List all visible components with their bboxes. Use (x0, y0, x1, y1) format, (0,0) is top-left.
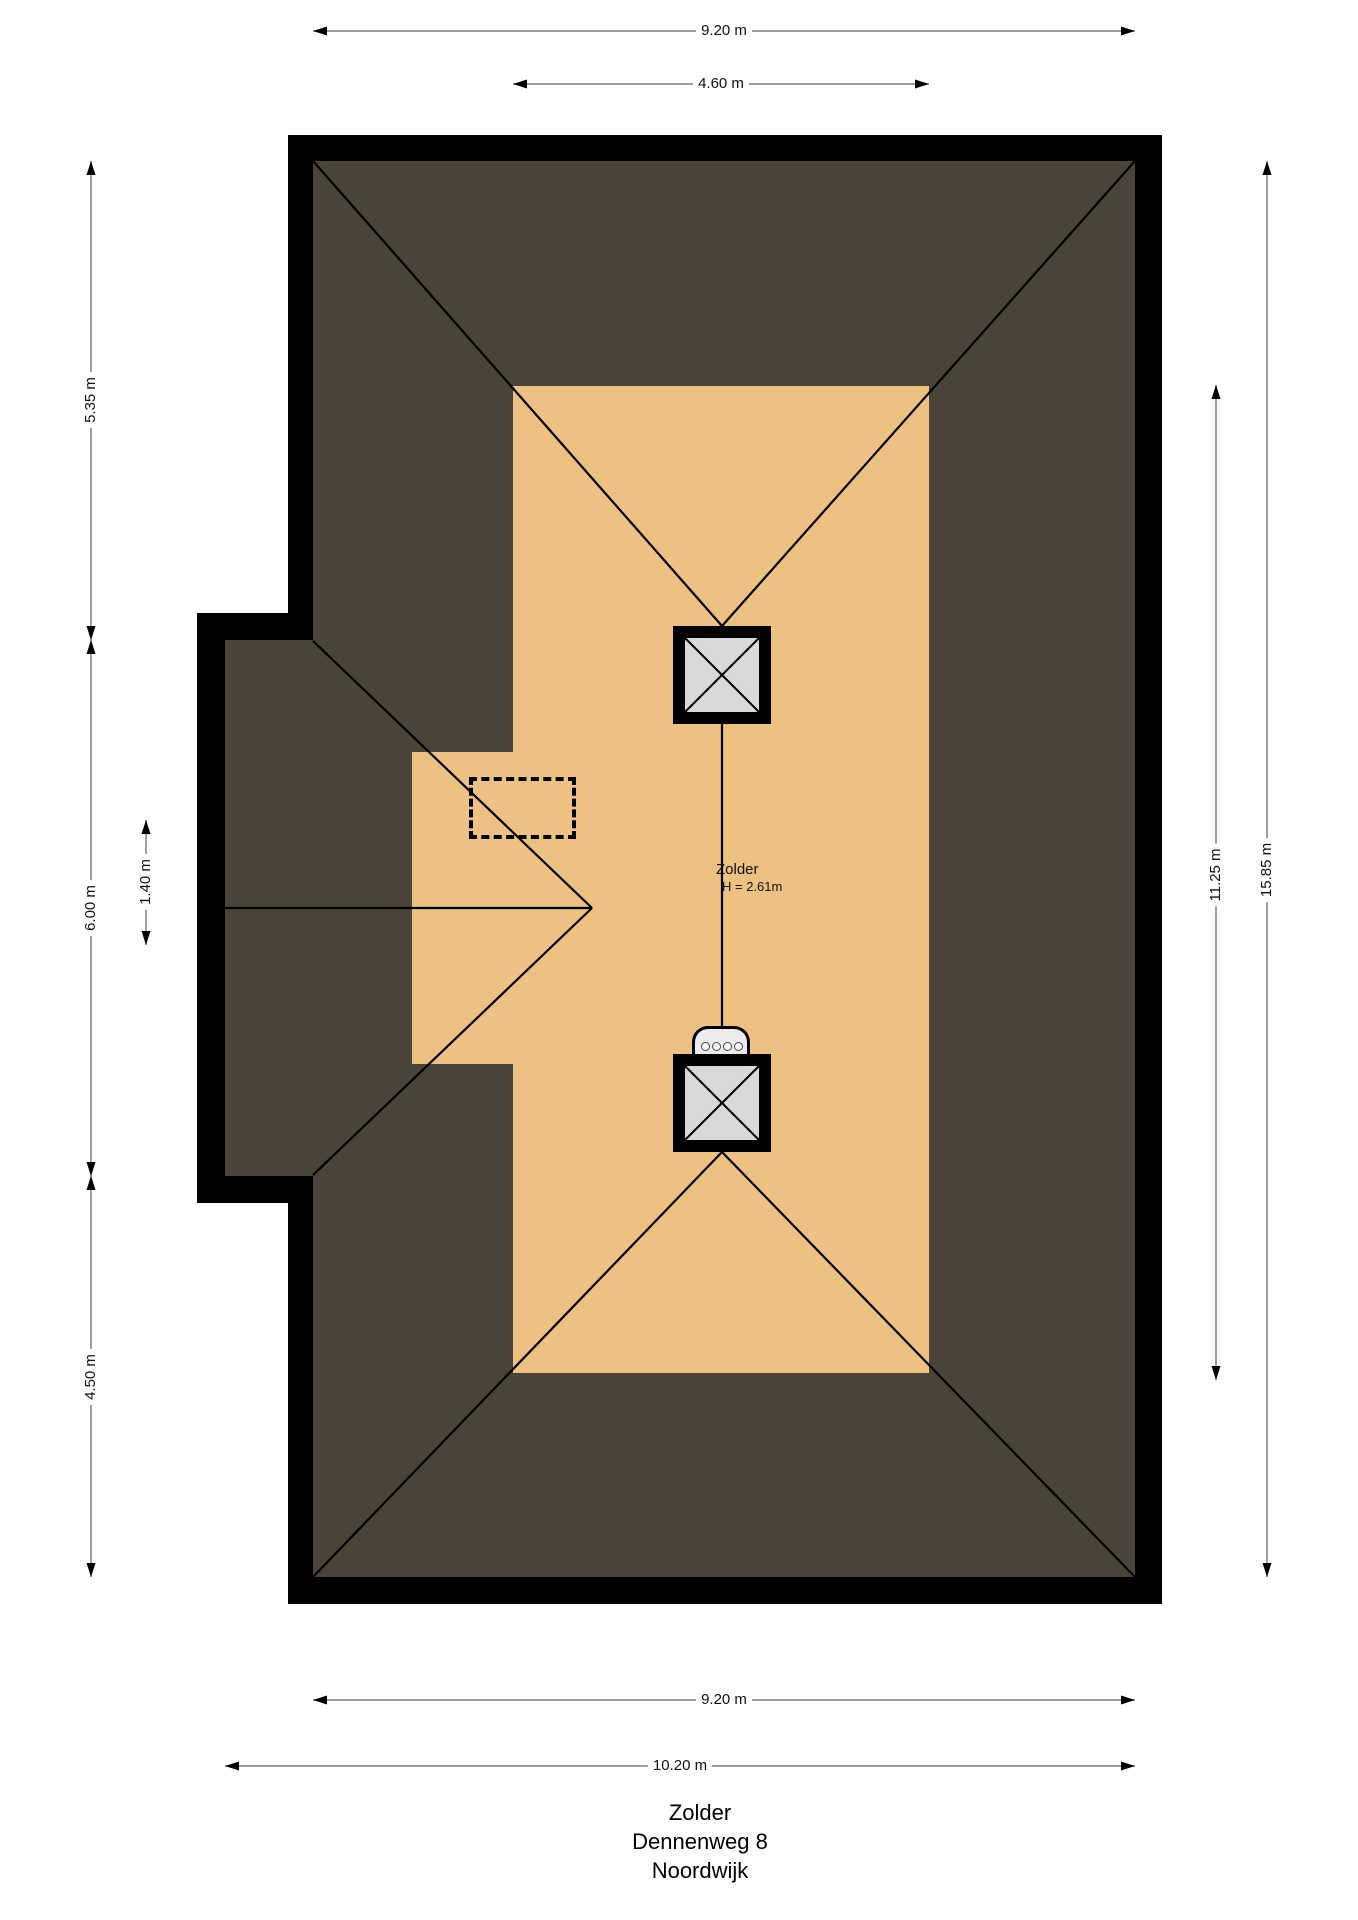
dormer-hip-top (313, 641, 592, 908)
dim-top-outer: 9.20 m (696, 22, 752, 40)
dimension-lines (91, 31, 1267, 1766)
title-address: Dennenweg 8 (632, 1827, 768, 1856)
vent-dot (723, 1042, 732, 1051)
dim-left-inner: 1.40 m (137, 854, 155, 910)
dim-top-attic: 4.60 m (693, 75, 749, 93)
dim-left-top: 5.35 m (82, 372, 100, 428)
skylight-symbol-top (673, 626, 771, 724)
dim-bottom-inner: 9.20 m (696, 1691, 752, 1709)
vent-dot (712, 1042, 721, 1051)
vent-dot (734, 1042, 743, 1051)
title-floor: Zolder (632, 1798, 768, 1827)
room-name: Zolder (716, 861, 782, 878)
roof-and-dimension-lines (0, 0, 1358, 1920)
dashed-feature-outline (469, 777, 576, 839)
dormer-hip-bottom (313, 908, 592, 1175)
hip-line-bottom-left (313, 1152, 722, 1577)
title-city: Noordwijk (632, 1856, 768, 1885)
hip-line-bottom-right (722, 1152, 1135, 1577)
room-label: Zolder H = 2.61m (716, 861, 782, 895)
skylight-cross-icon (673, 1054, 771, 1152)
vent-dot (701, 1042, 710, 1051)
dim-right-inner: 11.25 m (1207, 843, 1225, 906)
title-block: Zolder Dennenweg 8 Noordwijk (632, 1798, 768, 1885)
vent-symbol (692, 1026, 750, 1054)
dim-right-outer: 15.85 m (1258, 838, 1276, 902)
dim-left-bottom: 4.50 m (82, 1349, 100, 1405)
hip-line-top-left (313, 161, 722, 626)
roof-hip-lines (225, 161, 1135, 1577)
skylight-cross-icon (673, 626, 771, 724)
dimension-arrowheads (87, 27, 1272, 1771)
dim-left-middle: 6.00 m (82, 880, 100, 936)
room-ceiling-height: H = 2.61m (716, 878, 782, 895)
dim-bottom-outer: 10.20 m (648, 1757, 712, 1775)
skylight-symbol-bottom (673, 1054, 771, 1152)
floorplan-page: Zolder H = 2.61m 9.20 m 4.60 m 9.20 m 10… (0, 0, 1358, 1920)
hip-line-top-right (722, 161, 1135, 626)
